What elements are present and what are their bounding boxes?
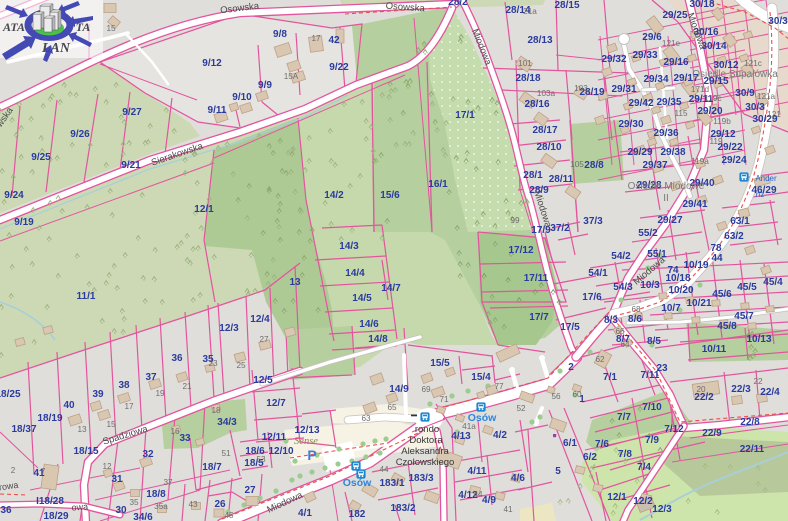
svg-text:14/4: 14/4 (345, 268, 365, 279)
svg-text:9/19: 9/19 (14, 217, 34, 228)
svg-text:16/1: 16/1 (428, 179, 448, 190)
svg-text:32: 32 (142, 449, 154, 460)
svg-text:45/7: 45/7 (734, 311, 754, 322)
svg-text:29/37: 29/37 (642, 160, 667, 171)
svg-text:28/8: 28/8 (584, 160, 604, 171)
svg-text:22/11: 22/11 (740, 444, 765, 455)
svg-text:7/1: 7/1 (603, 372, 617, 383)
svg-text:55/2: 55/2 (638, 228, 658, 239)
svg-text:I18/28: I18/28 (36, 496, 64, 507)
svg-text:7/10: 7/10 (642, 402, 662, 413)
svg-text:45: 45 (224, 511, 234, 520)
svg-text:27: 27 (244, 485, 256, 496)
svg-text:ATA: ATA (2, 20, 25, 34)
svg-text:LAN: LAN (41, 41, 71, 56)
svg-text:Osiedle Miodowe: Osiedle Miodowe (628, 181, 705, 192)
svg-text:64: 64 (620, 340, 630, 349)
svg-text:17/7: 17/7 (529, 312, 549, 323)
svg-text:29/16: 29/16 (663, 57, 688, 68)
svg-text:39: 39 (92, 389, 104, 400)
svg-text:182: 182 (349, 509, 366, 520)
svg-text:42: 42 (328, 35, 340, 46)
svg-text:9/10: 9/10 (232, 92, 252, 103)
svg-text:68: 68 (631, 305, 641, 314)
svg-text:71: 71 (439, 395, 449, 404)
svg-text:29/42: 29/42 (628, 98, 653, 109)
svg-text:99: 99 (510, 216, 520, 225)
svg-text:52: 52 (516, 404, 526, 413)
svg-text:27: 27 (259, 335, 269, 344)
svg-text:4/9: 4/9 (482, 495, 496, 506)
svg-text:54/3: 54/3 (613, 282, 633, 293)
svg-text:8/3: 8/3 (604, 315, 618, 326)
svg-text:31: 31 (111, 474, 123, 485)
svg-text:15A: 15A (284, 72, 299, 81)
svg-text:4/11: 4/11 (468, 466, 487, 477)
svg-text:44: 44 (711, 253, 723, 264)
svg-text:29/31: 29/31 (611, 84, 636, 95)
svg-text:7: 7 (41, 467, 46, 476)
svg-text:9/9: 9/9 (258, 80, 272, 91)
svg-text:30/3: 30/3 (768, 16, 788, 27)
svg-text:Czołowskiego: Czołowskiego (396, 457, 455, 468)
svg-text:38: 38 (118, 380, 130, 391)
svg-text:37: 37 (145, 372, 157, 383)
svg-text:14/8: 14/8 (368, 334, 388, 345)
svg-text:44: 44 (473, 490, 483, 499)
svg-text:13: 13 (77, 425, 87, 434)
svg-text:21: 21 (182, 382, 192, 391)
svg-text:65: 65 (387, 403, 397, 412)
svg-text:34/3: 34/3 (217, 417, 237, 428)
svg-text:29/32: 29/32 (601, 54, 626, 65)
svg-text:45/8: 45/8 (717, 321, 737, 332)
svg-text:4/2: 4/2 (493, 430, 507, 441)
svg-text:4/6: 4/6 (511, 473, 525, 484)
svg-text:TA: TA (76, 20, 91, 34)
svg-text:2: 2 (11, 466, 16, 475)
svg-text:29/6: 29/6 (642, 32, 662, 43)
svg-text:15: 15 (106, 24, 116, 33)
svg-text:19: 19 (155, 389, 165, 398)
svg-text:22/4: 22/4 (760, 387, 780, 398)
svg-text:29/38: 29/38 (660, 147, 685, 158)
svg-text:29/33: 29/33 (632, 50, 657, 61)
svg-text:7/4: 7/4 (637, 462, 651, 473)
svg-text:23: 23 (208, 359, 218, 368)
svg-text:28/1: 28/1 (523, 170, 543, 181)
svg-text:30/18: 30/18 (689, 0, 714, 10)
svg-text:14/9: 14/9 (389, 384, 409, 395)
svg-text:14/3: 14/3 (339, 241, 359, 252)
svg-text:10/19: 10/19 (683, 260, 708, 271)
svg-text:10/7: 10/7 (661, 303, 681, 314)
svg-text:35: 35 (129, 498, 139, 507)
svg-text:183/3: 183/3 (408, 473, 433, 484)
svg-text:45/4: 45/4 (763, 277, 783, 288)
svg-text:18/7: 18/7 (202, 462, 222, 473)
svg-text:14/7: 14/7 (381, 283, 401, 294)
svg-text:12/11: 12/11 (262, 432, 287, 443)
svg-text:28/2: 28/2 (448, 0, 468, 8)
svg-text:35a: 35a (154, 502, 168, 511)
svg-text:37: 37 (163, 478, 173, 487)
svg-text:7/7: 7/7 (617, 412, 631, 423)
svg-text:37/3: 37/3 (583, 216, 603, 227)
svg-text:121a: 121a (757, 92, 776, 101)
svg-text:22: 22 (753, 377, 763, 386)
svg-text:54/1: 54/1 (588, 268, 608, 279)
svg-text:12/3: 12/3 (219, 323, 239, 334)
svg-text:103: 103 (574, 84, 588, 93)
svg-text:29/24: 29/24 (721, 155, 746, 166)
svg-text:6/1: 6/1 (563, 438, 577, 449)
svg-text:7/8: 7/8 (618, 449, 632, 460)
svg-text:17/5: 17/5 (560, 322, 580, 333)
svg-text:10/18: 10/18 (665, 273, 690, 284)
svg-text:103a: 103a (537, 89, 556, 98)
svg-text:40: 40 (63, 400, 75, 411)
svg-text:69: 69 (421, 385, 431, 394)
svg-text:28/15: 28/15 (554, 0, 579, 11)
svg-text:15/4: 15/4 (471, 372, 491, 383)
svg-text:8/5: 8/5 (647, 336, 661, 347)
svg-text:53: 53 (256, 455, 266, 464)
svg-text:29/30: 29/30 (618, 119, 643, 130)
svg-text:14/2: 14/2 (324, 190, 344, 201)
svg-text:115: 115 (674, 109, 687, 118)
svg-text:2: 2 (568, 362, 574, 373)
svg-text:77: 77 (494, 382, 504, 391)
svg-text:54/2: 54/2 (611, 251, 631, 262)
svg-text:P: P (307, 447, 316, 463)
svg-text:18/37: 18/37 (11, 424, 36, 435)
svg-text:8/6: 8/6 (628, 314, 642, 325)
svg-text:30/9: 30/9 (735, 88, 755, 99)
svg-text:9/21: 9/21 (121, 160, 141, 171)
svg-text:18/19: 18/19 (37, 413, 62, 424)
svg-text:9/25: 9/25 (31, 152, 51, 163)
svg-text:119b: 119b (713, 117, 731, 126)
svg-text:7/12: 7/12 (664, 424, 684, 435)
svg-text:12/3: 12/3 (652, 504, 672, 515)
svg-text:63/2: 63/2 (724, 231, 744, 242)
svg-text:17: 17 (124, 402, 134, 411)
svg-text:121e: 121e (662, 39, 681, 48)
svg-text:36: 36 (171, 353, 183, 364)
svg-text:9/12: 9/12 (202, 58, 222, 69)
svg-text:45/5: 45/5 (737, 282, 757, 293)
svg-text:28/16: 28/16 (524, 99, 549, 110)
svg-text:28/18: 28/18 (515, 73, 540, 84)
svg-text:7/11: 7/11 (641, 370, 660, 381)
svg-text:12/5: 12/5 (253, 375, 273, 386)
svg-text:12: 12 (102, 462, 112, 471)
svg-text:29/27: 29/27 (657, 215, 682, 226)
svg-text:9/22: 9/22 (329, 62, 349, 73)
svg-text:26: 26 (214, 499, 226, 510)
svg-text:183/2: 183/2 (390, 503, 415, 514)
svg-text:22/9: 22/9 (702, 428, 722, 439)
svg-text:28/17: 28/17 (532, 125, 557, 136)
svg-text:9/24: 9/24 (4, 190, 24, 201)
svg-text:9/11: 9/11 (208, 105, 227, 116)
svg-text:78: 78 (710, 243, 722, 254)
svg-text:28/13: 28/13 (527, 35, 552, 46)
svg-text:15/5: 15/5 (430, 358, 450, 369)
svg-text:18/29: 18/29 (43, 511, 68, 521)
svg-text:18/8: 18/8 (146, 489, 166, 500)
svg-text:rondo: rondo (415, 424, 439, 435)
svg-text:29/20: 29/20 (697, 106, 722, 117)
svg-text:183/1: 183/1 (379, 478, 404, 489)
svg-text:12/10: 12/10 (268, 446, 293, 457)
svg-text:12/1: 12/1 (194, 204, 214, 215)
svg-text:15/6: 15/6 (380, 190, 400, 201)
svg-text:4/13: 4/13 (451, 431, 471, 442)
svg-text:12/4: 12/4 (250, 314, 270, 325)
svg-text:34/6: 34/6 (133, 512, 153, 521)
svg-text:owa: owa (71, 501, 88, 512)
svg-text:25: 25 (236, 361, 246, 370)
svg-text:20: 20 (696, 385, 706, 394)
svg-text:Osów: Osów (343, 477, 372, 489)
svg-text:13: 13 (289, 277, 301, 288)
svg-text:Osów: Osów (468, 412, 497, 424)
svg-text:10/21: 10/21 (686, 298, 711, 309)
svg-text:17/6: 17/6 (582, 292, 602, 303)
svg-text:45/6: 45/6 (712, 289, 732, 300)
svg-text:28/10: 28/10 (536, 142, 561, 153)
svg-text:12/13: 12/13 (294, 425, 319, 436)
svg-text:16: 16 (170, 427, 180, 436)
svg-text:44: 44 (379, 465, 389, 474)
svg-text:119c: 119c (704, 94, 721, 103)
svg-text:9/27: 9/27 (122, 107, 142, 118)
svg-text:6/2: 6/2 (583, 452, 597, 463)
svg-text:9/8: 9/8 (273, 29, 287, 40)
svg-text:Aleksandra: Aleksandra (401, 446, 449, 457)
svg-text:29/34: 29/34 (643, 74, 668, 85)
svg-text:41: 41 (503, 505, 513, 514)
svg-text:10/13: 10/13 (746, 334, 771, 345)
svg-text:33: 33 (179, 433, 191, 444)
svg-text:29/41: 29/41 (682, 199, 707, 210)
svg-text:56: 56 (551, 392, 561, 401)
svg-text:29/29: 29/29 (627, 147, 652, 158)
svg-text:63: 63 (361, 414, 371, 423)
svg-text:4/1: 4/1 (298, 508, 312, 519)
svg-text:119: 119 (709, 137, 722, 146)
svg-text:51: 51 (221, 449, 231, 458)
svg-text:22/8: 22/8 (740, 417, 760, 428)
svg-text:60: 60 (572, 390, 582, 399)
svg-text:17/12: 17/12 (508, 245, 533, 256)
svg-text:12/7: 12/7 (266, 398, 286, 409)
svg-text:Doktora: Doktora (409, 435, 443, 446)
svg-text:17/11: 17/11 (524, 273, 549, 284)
svg-text:21a: 21a (523, 7, 537, 16)
svg-text:17: 17 (311, 34, 321, 43)
svg-text:11/1: 11/1 (77, 291, 96, 302)
svg-text:101: 101 (518, 59, 532, 68)
svg-text:9/26: 9/26 (70, 129, 90, 140)
svg-text:Sense: Sense (294, 436, 318, 447)
svg-text:5: 5 (555, 466, 561, 477)
svg-text:Ander: Ander (755, 174, 777, 183)
svg-text:12/2: 12/2 (633, 496, 653, 507)
svg-text:7/6: 7/6 (595, 439, 609, 450)
svg-text:II: II (663, 193, 669, 204)
svg-text:14/6: 14/6 (359, 319, 379, 330)
svg-text:22/3: 22/3 (731, 384, 751, 395)
svg-text:Osiedle Supałówka: Osiedle Supałówka (692, 69, 778, 80)
svg-text:63/1: 63/1 (730, 216, 750, 227)
svg-text:121c: 121c (744, 59, 762, 68)
svg-text:nz: nz (756, 190, 764, 199)
svg-text:10/20: 10/20 (668, 285, 693, 296)
svg-text:30: 30 (115, 505, 127, 516)
svg-text:15: 15 (106, 420, 116, 429)
svg-text:105: 105 (570, 160, 584, 169)
svg-text:29/36: 29/36 (653, 128, 678, 139)
svg-text:62: 62 (595, 355, 605, 364)
svg-text:29/35: 29/35 (656, 97, 681, 108)
svg-text:121: 121 (767, 110, 781, 119)
svg-text:10/11: 10/11 (702, 344, 727, 355)
svg-text:36: 36 (0, 505, 12, 516)
svg-text:119a: 119a (691, 157, 709, 166)
svg-text:171d: 171d (691, 85, 710, 94)
svg-text:18/15: 18/15 (73, 446, 98, 457)
svg-text:7/9: 7/9 (645, 435, 659, 446)
svg-text:30/3: 30/3 (745, 102, 765, 113)
svg-text:28/11: 28/11 (549, 174, 574, 185)
svg-text:12/1: 12/1 (607, 492, 627, 503)
svg-text:14/5: 14/5 (352, 293, 372, 304)
svg-text:43: 43 (188, 500, 198, 509)
svg-text:17/1: 17/1 (455, 110, 475, 121)
svg-text:18/25: 18/25 (0, 389, 21, 400)
svg-text:66: 66 (615, 327, 625, 336)
svg-text:29/25: 29/25 (662, 10, 687, 21)
svg-text:18: 18 (211, 406, 221, 415)
